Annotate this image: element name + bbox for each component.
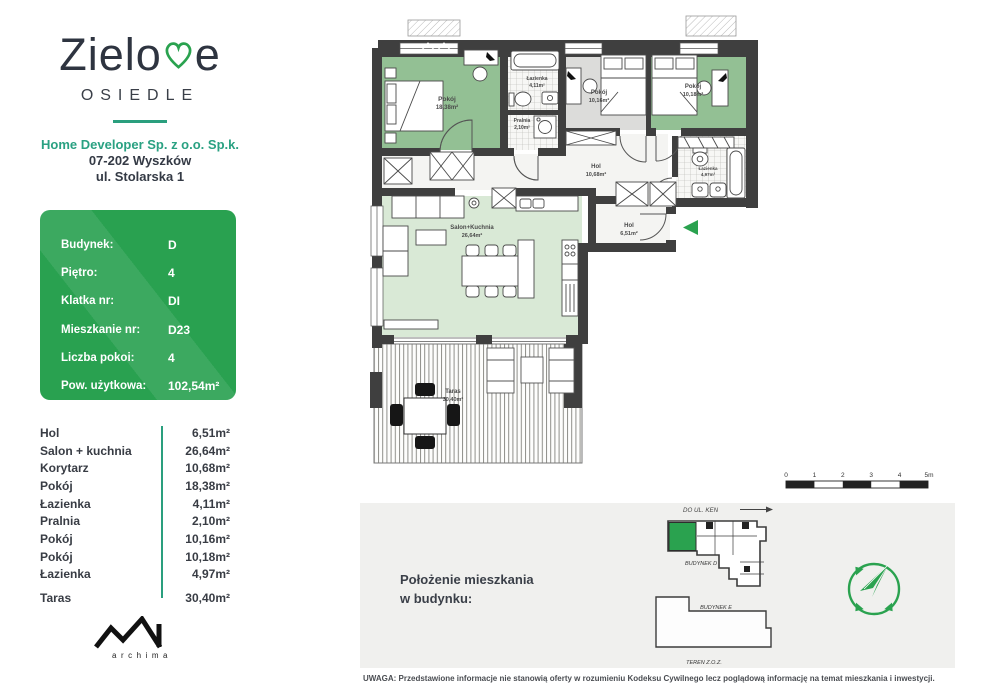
- archima-logo: archima: [92, 616, 192, 660]
- table-row: Hol6,51m²: [40, 424, 230, 442]
- scale-bar: 0 1 2 3 4 5m: [780, 466, 945, 494]
- building-d: BUDYNEK D: [668, 521, 766, 586]
- developer-postal: 07-202 Wyszków: [28, 153, 252, 169]
- balcony-rails: [408, 16, 736, 36]
- info-row-liczba-pokoi: Liczba pokoi:4: [40, 344, 236, 372]
- svg-text:10,18m²: 10,18m²: [683, 91, 704, 98]
- compass-icon: [849, 564, 899, 615]
- svg-text:4,97m²: 4,97m²: [701, 172, 716, 177]
- table-row: Pralnia2,10m²: [40, 512, 230, 530]
- direction-label: DO UL. KEN: [683, 507, 773, 515]
- disclaimer-text: UWAGA: Przedstawione informacje nie stan…: [363, 674, 955, 683]
- table-row: Taras30,40m²: [40, 589, 230, 607]
- teren-label: TEREN Z.O.Z.: [686, 660, 722, 666]
- location-heading: Położenie mieszkania w budynku:: [400, 570, 534, 608]
- svg-text:3: 3: [869, 472, 873, 479]
- pantry-cabinet: [492, 188, 516, 208]
- brand-wordmark: Zieloe: [28, 30, 252, 80]
- room-area-table: Hol6,51m² Salon + kuchnia26,64m² Korytar…: [40, 424, 230, 607]
- svg-text:30,40m²: 30,40m²: [443, 396, 464, 403]
- wardrobe-icon: [650, 182, 676, 206]
- tv-bench-icon: [384, 320, 438, 329]
- brand-logo: Zieloe OSIEDLE Home Developer Sp. z o.o.…: [28, 30, 252, 185]
- apartment-info-card: Budynek:D Piętro:4 Klatka nr:DI Mieszkan…: [40, 210, 236, 400]
- svg-text:4: 4: [898, 472, 902, 479]
- svg-text:Hol: Hol: [591, 164, 601, 170]
- svg-text:0: 0: [784, 472, 788, 479]
- svg-text:18,38m²: 18,38m²: [436, 104, 458, 111]
- kitchen-counter: [516, 196, 578, 211]
- terrace: [370, 344, 582, 463]
- brand-text-pre: Zielo: [59, 29, 162, 80]
- table-row: Pokój10,16m²: [40, 530, 230, 548]
- north-plane-icon: [860, 565, 888, 597]
- svg-text:26,64m²: 26,64m²: [462, 232, 483, 239]
- highlighted-apartment: [669, 523, 696, 551]
- info-row-budynek: Budynek:D: [40, 231, 236, 259]
- svg-text:DO UL. KEN: DO UL. KEN: [683, 507, 719, 514]
- archima-mark: [92, 616, 172, 650]
- svg-text:1: 1: [813, 472, 817, 479]
- archima-letters: archima: [92, 651, 192, 660]
- wardrobe-icon: [616, 182, 648, 206]
- svg-text:Hol: Hol: [624, 223, 634, 229]
- heart-icon: [162, 39, 195, 72]
- svg-text:BUDYNEK E: BUDYNEK E: [700, 605, 732, 611]
- wardrobe-icon: [566, 131, 616, 145]
- table-row: Pokój18,38m²: [40, 477, 230, 495]
- svg-text:Pokój: Pokój: [591, 90, 608, 96]
- table-row: Korytarz10,68m²: [40, 459, 230, 477]
- svg-text:Pralnia: Pralnia: [514, 118, 531, 124]
- svg-text:2,10m²: 2,10m²: [514, 125, 530, 131]
- svg-text:Pokój: Pokój: [685, 84, 702, 90]
- wardrobe-icon: [678, 137, 734, 148]
- svg-text:4,11m²: 4,11m²: [529, 83, 545, 89]
- brand-text-post: e: [195, 29, 221, 80]
- info-row-pietro: Piętro:4: [40, 259, 236, 287]
- svg-text:BUDYNEK D: BUDYNEK D: [685, 561, 717, 567]
- wardrobe-icon: [384, 158, 412, 184]
- table-row: Salon + kuchnia26,64m²: [40, 442, 230, 460]
- divider-rule: [113, 120, 167, 123]
- developer-name: Home Developer Sp. z o.o. Sp.k.: [28, 137, 252, 153]
- dining-set: [462, 245, 518, 297]
- svg-text:2: 2: [841, 472, 845, 479]
- svg-text:10,16m²: 10,16m²: [589, 97, 610, 104]
- wardrobe-icon: [430, 152, 474, 180]
- svg-text:Pokój: Pokój: [438, 96, 456, 103]
- brand-subtitle: OSIEDLE: [28, 87, 252, 105]
- info-row-powierzchnia: Pow. użytkowa:102,54m²: [40, 372, 236, 400]
- svg-text:Salon+Kuchnia: Salon+Kuchnia: [450, 225, 494, 231]
- info-row-mieszkanie: Mieszkanie nr:D23: [40, 316, 236, 344]
- svg-text:Łazienka: Łazienka: [698, 166, 718, 171]
- building-e: BUDYNEK E: [656, 597, 771, 647]
- table-row: Łazienka4,11m²: [40, 495, 230, 513]
- info-row-klatka: Klatka nr:DI: [40, 287, 236, 315]
- developer-street: ul. Stolarska 1: [28, 169, 252, 185]
- svg-text:10,68m²: 10,68m²: [586, 171, 607, 178]
- svg-text:6,51m²: 6,51m²: [620, 230, 638, 237]
- svg-text:Taras: Taras: [445, 389, 461, 395]
- floor-plan: Pokój 18,38m² Łazienka 4,11m² Pralnia 2,…: [365, 0, 770, 475]
- svg-text:Łazienka: Łazienka: [526, 76, 547, 82]
- site-map: DO UL. KEN BUDYNEK D BUDYNEK E TEREN Z.O…: [640, 495, 950, 680]
- svg-text:5m: 5m: [924, 472, 933, 479]
- table-row: Pokój10,18m²: [40, 548, 230, 566]
- kitchen-appliances: [562, 240, 578, 316]
- table-divider-line: [161, 426, 163, 598]
- entrance-arrow-icon: [683, 220, 698, 235]
- table-row: Łazienka4,97m²: [40, 566, 230, 584]
